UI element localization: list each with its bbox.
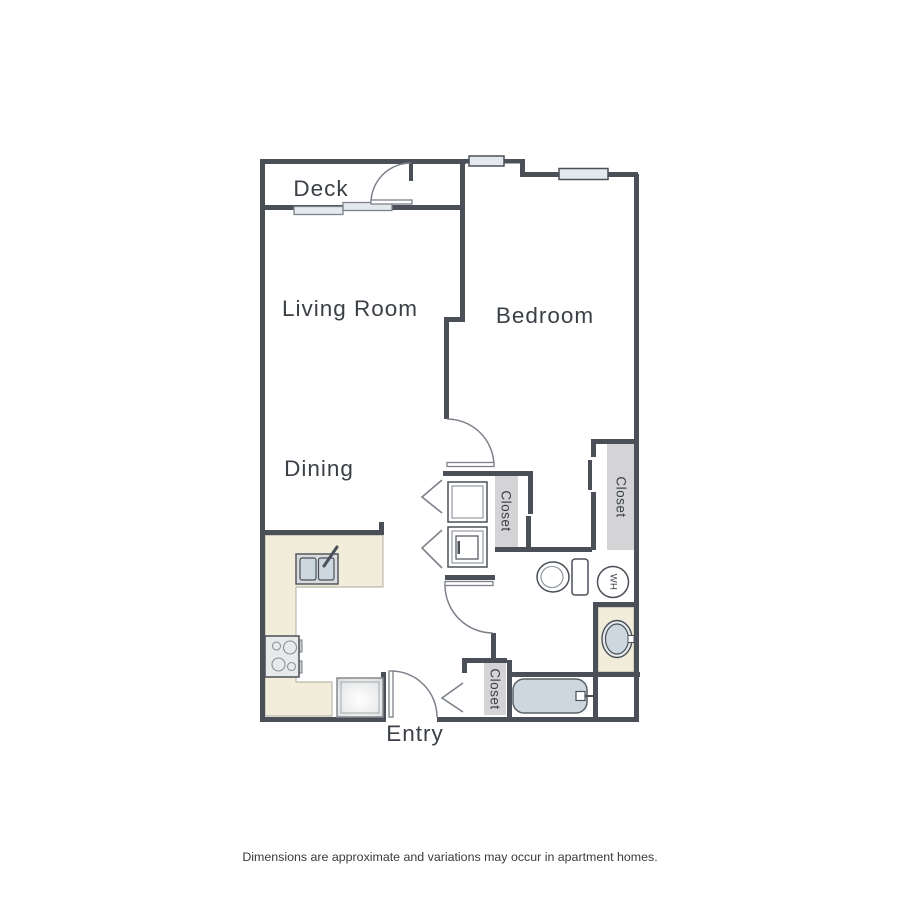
deck-door-leaf (371, 200, 412, 204)
sliding-door-panel-left (294, 207, 343, 215)
living-room-label: Living Room (282, 296, 418, 321)
bedroom-closet-label: Closet (614, 476, 629, 517)
stove (265, 636, 302, 677)
kitchen-sink-basin-left (300, 558, 316, 580)
bedroom-door-arc (447, 419, 494, 466)
deck-door (371, 163, 412, 204)
disclaimer-text: Dimensions are approximate and variation… (242, 850, 657, 864)
laundry-door-icon-bottom (422, 530, 442, 568)
bedroom-label: Bedroom (496, 303, 594, 328)
wall-entrycloset-top (462, 658, 507, 663)
wall-kitchen-half (260, 530, 383, 535)
entry-door (389, 671, 437, 717)
floorplan-drawing: WH Deck Living Room Bedroom Dining Entry… (0, 0, 900, 900)
wall-waterheater-bottom (593, 602, 639, 607)
wall-deck-top (260, 159, 466, 164)
dryer (448, 527, 487, 567)
laundry-door-icon-top (422, 480, 442, 513)
water-heater: WH (598, 567, 629, 598)
entry-closet-door-icon (442, 683, 463, 712)
deck-door-arc (371, 163, 411, 203)
hall-closet-label: Closet (499, 490, 514, 531)
entry-door-leaf (389, 671, 393, 717)
washer-body (448, 482, 487, 522)
bathroom-sink-faucet (628, 636, 634, 643)
wall-living-bedroom-lower (444, 317, 449, 419)
hall-door-leaf (445, 582, 493, 586)
wall-hallcloset-jamb-a (528, 476, 533, 514)
wall-kitchen-endcap (379, 522, 384, 535)
bathroom-sink-basin (606, 624, 629, 654)
walls (260, 159, 640, 722)
refrigerator-body (337, 678, 383, 717)
entry-label: Entry (386, 721, 444, 746)
wall-halldoor-side (491, 633, 496, 660)
entry-door-arc (391, 671, 437, 717)
bathtub (513, 679, 597, 713)
refrigerator (337, 678, 383, 717)
dryer-door-handle (458, 541, 461, 554)
window-bedroom (559, 169, 608, 180)
wall-living-bedroom-upper (460, 159, 465, 322)
wall-bathroom-bottom (512, 672, 640, 677)
floorplan-page: WH Deck Living Room Bedroom Dining Entry… (0, 0, 900, 900)
wall-hall-top (443, 471, 533, 476)
dining-label: Dining (284, 456, 354, 481)
entry-closet-label: Closet (488, 668, 503, 709)
toilet (537, 559, 588, 595)
wall-laundry-bottom (445, 575, 495, 580)
wall-entrycloset-stub (462, 658, 467, 673)
bedroom-door (447, 419, 494, 467)
deck-label: Deck (293, 176, 348, 201)
wall-bedroomcloset-left-c (591, 492, 596, 550)
wall-deckdoor-jamb (409, 163, 413, 181)
wall-hallcloset-jamb-b (526, 516, 531, 548)
bathtub-faucet (576, 692, 585, 701)
wall-bedroomcloset-top (591, 439, 639, 444)
hall-door-arc (445, 585, 493, 633)
wall-bottom-right (437, 717, 639, 722)
bedroom-door-leaf (447, 463, 494, 467)
wall-right (634, 174, 639, 722)
window-top-small (469, 156, 504, 166)
toilet-tank (572, 559, 588, 595)
wall-vanity-left (593, 602, 598, 674)
hall-door (445, 582, 493, 634)
wall-bathroom-top (495, 547, 592, 552)
wall-bedroomcloset-left-b (588, 460, 592, 490)
wall-entrycloset-right (507, 660, 512, 718)
water-heater-label: WH (608, 574, 619, 590)
washer (448, 482, 487, 522)
